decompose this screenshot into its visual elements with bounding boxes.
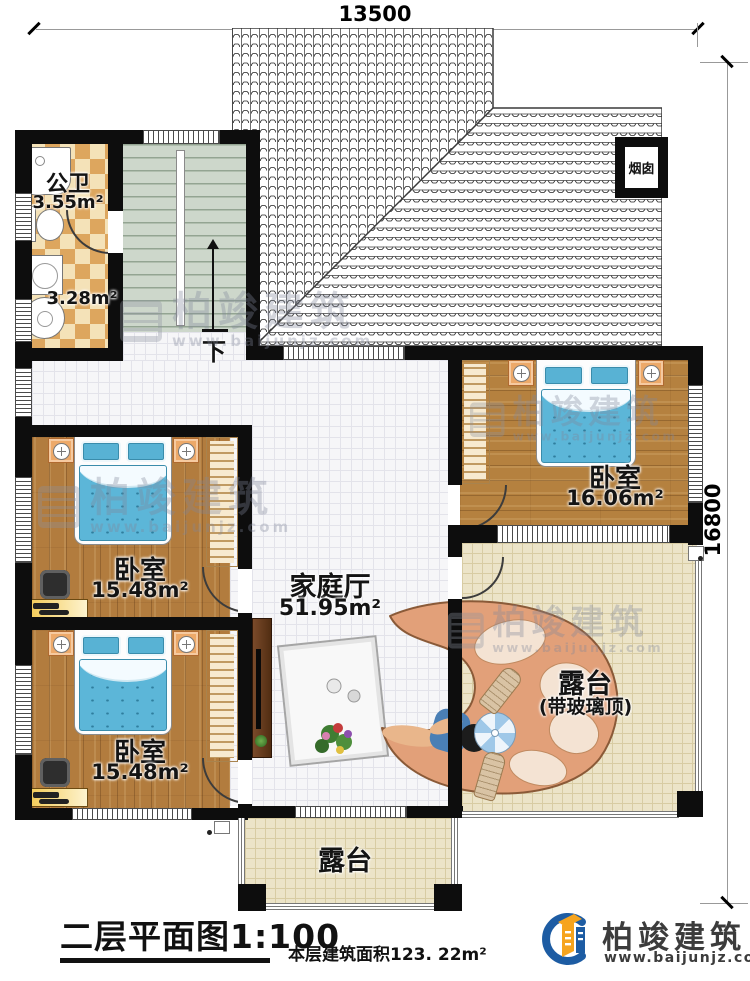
toilet-icon [36,209,64,241]
wall [448,599,462,806]
brand-site: www.baijunjz.com [604,950,750,966]
wardrobe [206,437,238,567]
tv-cabinet [252,618,272,758]
dimension-line-right [727,62,728,903]
wall [246,144,260,360]
railing [695,560,703,793]
wall [15,617,248,630]
nightstand [48,631,74,656]
wall [246,346,283,360]
window [15,299,32,342]
wall [15,348,123,361]
railing [238,818,245,884]
room-area-bath2: 3.28m² [40,288,124,309]
window [15,477,32,563]
floor-plan: 13500 16800 烟囱 下 [0,0,750,981]
dimension-stub [700,62,748,63]
window [497,525,670,543]
stair-stringer [176,150,185,326]
window [688,385,703,503]
desk [24,788,88,807]
wardrobe [460,360,490,484]
tv-icon [256,649,261,729]
floor-area-note: 本层建筑面积123. 22m² [288,940,487,965]
railing [462,811,679,819]
room-area-bedroom-bottom: 15.48m² [75,760,205,784]
window [295,806,407,818]
chimney: 烟囱 [615,137,668,198]
roof-outline [232,28,662,346]
dimension-stub [700,903,748,904]
room-note-terrace-right: (带玻璃顶) [508,692,663,719]
window [15,665,32,755]
drain-icon [214,821,230,834]
dimension-width: 13500 [320,2,430,26]
dimension-stub [697,23,698,47]
stair-down-label: 下 [198,332,230,367]
window [72,808,192,820]
window [15,368,32,417]
column [677,791,703,817]
room-label-terrace-bottom: 露台 [290,839,400,878]
room-area-bath: 3.55m² [28,192,108,213]
bed [74,433,172,545]
railing [451,818,458,884]
wall [448,360,462,485]
dimension-height: 16800 [701,465,725,575]
room-area-bedroom-right: 16.06m² [550,486,680,510]
wardrobe [206,630,238,762]
brand-logo-icon [538,906,598,972]
wall [15,425,248,437]
wall [405,346,703,360]
window [143,130,220,144]
desk-chair [40,570,70,599]
window [283,346,405,360]
column [238,884,266,911]
chimney-label: 烟囱 [628,158,654,177]
wall [15,130,260,144]
nightstand [48,438,74,463]
nightstand [173,631,199,656]
nightstand [638,360,664,386]
roof [232,28,662,346]
title-underline [60,958,270,963]
room-area-bedroom-mid: 15.48m² [75,578,205,602]
nightstand [173,438,199,463]
column [434,884,462,911]
desk-chair [40,758,70,787]
nightstand [508,360,534,386]
stair-arrow-line [212,242,214,332]
room-area-family-hall: 51.95m² [262,596,398,621]
plant-icon [255,735,267,747]
bed [536,357,636,467]
stair-arrow-head [207,233,219,249]
bed [74,627,172,735]
drain-icon [688,546,704,561]
